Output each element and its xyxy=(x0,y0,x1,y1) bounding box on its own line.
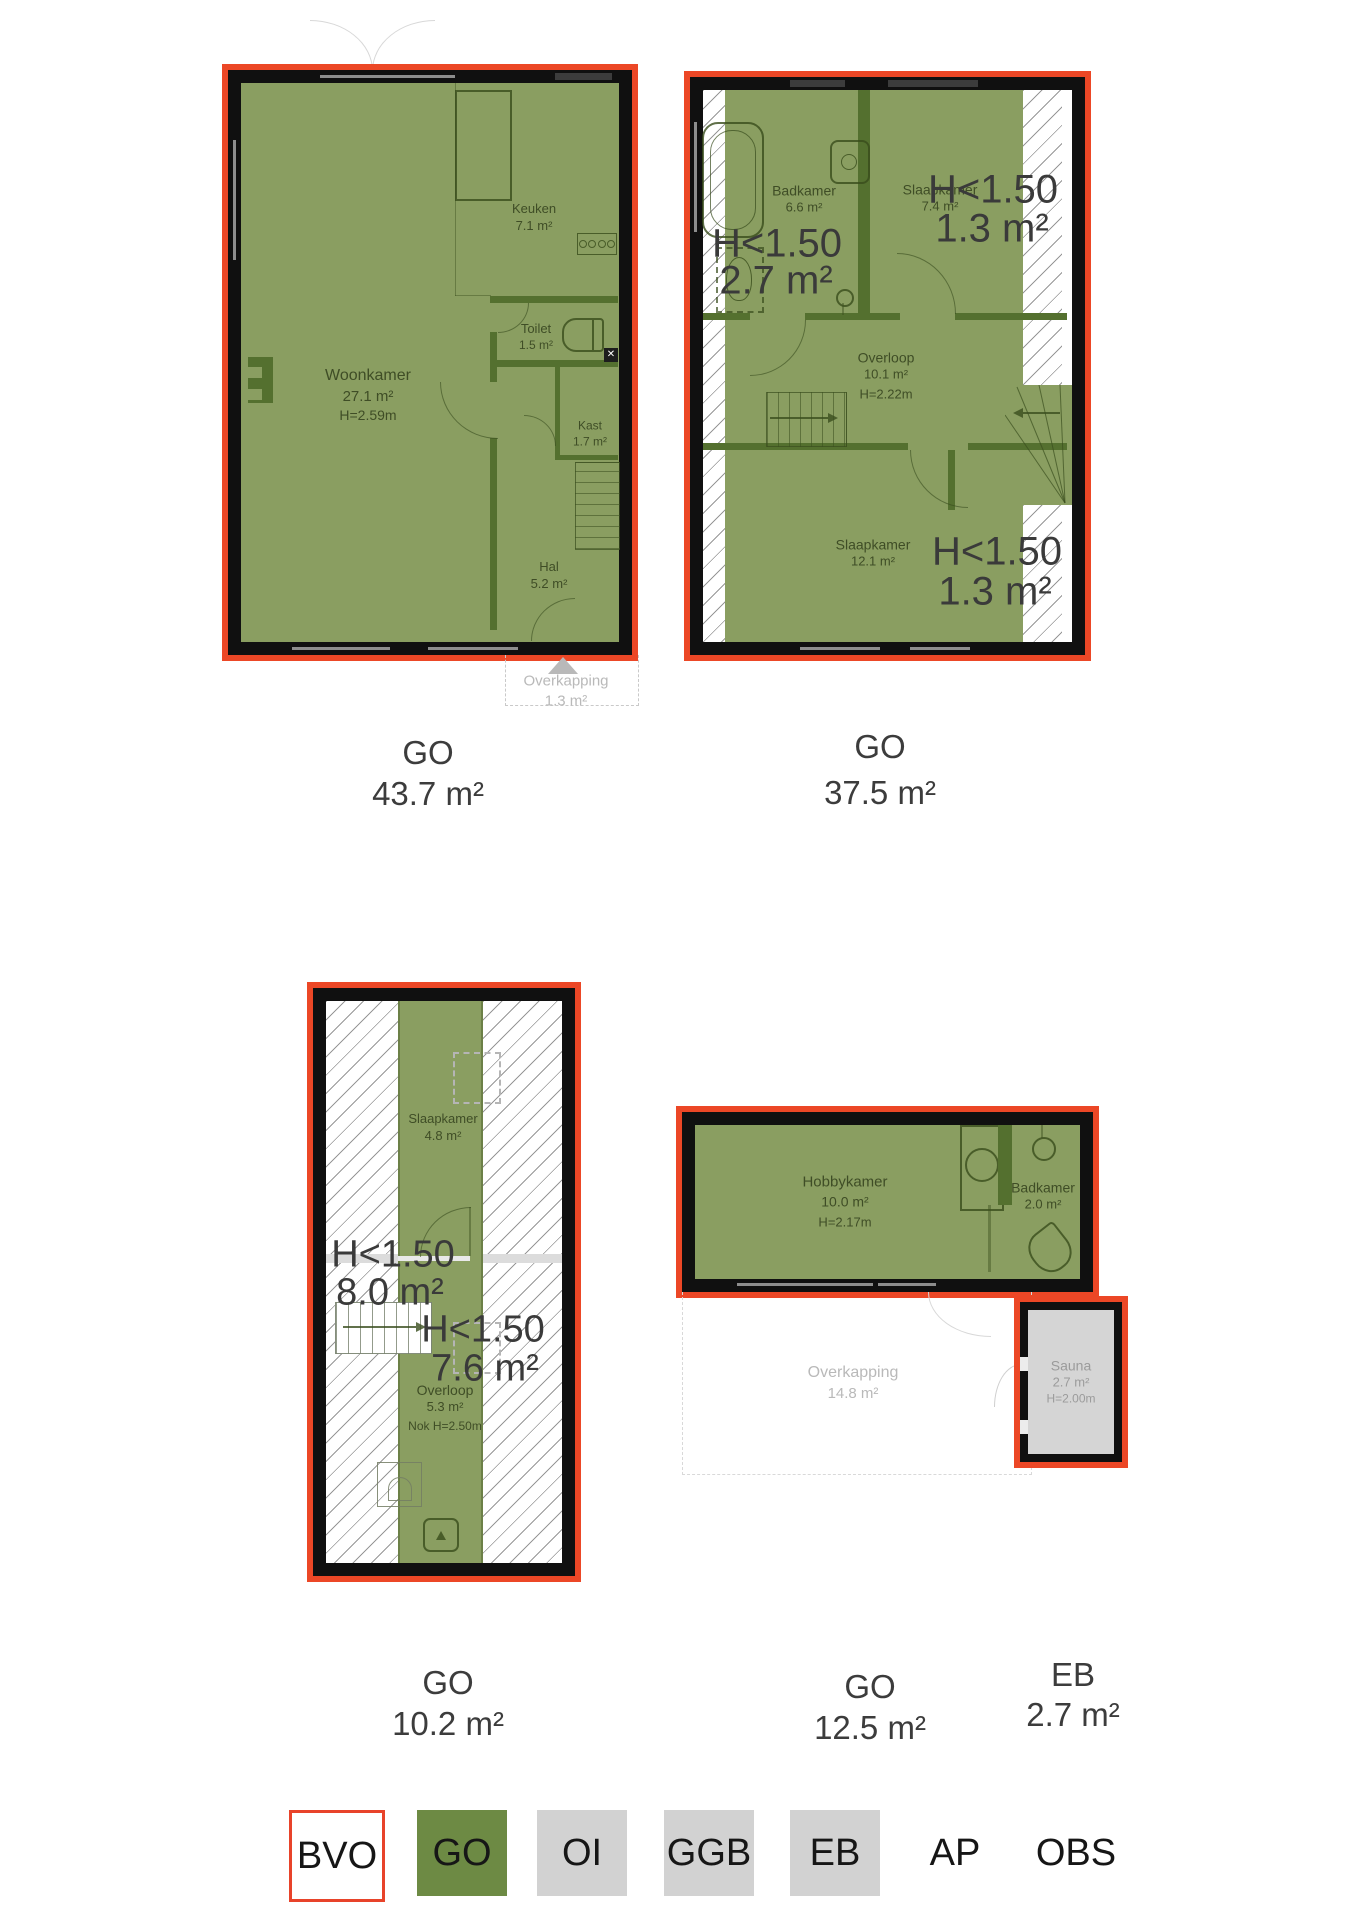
wall-kast-left xyxy=(555,367,560,460)
legend-item-ap: AP xyxy=(910,1810,1000,1896)
sauna-door-gap xyxy=(1020,1420,1028,1434)
wall-badkamer-right xyxy=(858,90,870,313)
room-label-hobbykamer: Hobbykamer 10.0 m² H=2.17m xyxy=(802,1173,887,1232)
knee-wall-band-right xyxy=(483,1254,562,1263)
room-label-slaapkamer3: Slaapkamer 4.8 m² xyxy=(408,1111,477,1145)
washbasin-icon xyxy=(965,1148,999,1182)
window-marker xyxy=(737,1283,873,1286)
eb-label-sauna: EB xyxy=(1051,1656,1095,1694)
plan4-annex: Hobbykamer 10.0 m² H=2.17m Badkamer 2.0 … xyxy=(682,1112,1093,1292)
room-label-overkapping-1: Overkapping 1.3 m² xyxy=(523,672,608,711)
room-label-kast: Kast 1.7 m² xyxy=(573,418,607,449)
go-area-plan3: 10.2 m² xyxy=(392,1705,504,1743)
go-area-plan4: 12.5 m² xyxy=(814,1709,926,1747)
floorplan-page: ✕ Keuken 7.1 m² Woonkamer 27.1 m² H=2.59… xyxy=(0,0,1358,1920)
door-leaf xyxy=(469,1207,471,1256)
legend-item-bvo: BVO xyxy=(289,1810,385,1902)
room-label-badkamer4: Badkamer 2.0 m² xyxy=(1011,1178,1075,1213)
kitchen-counter xyxy=(455,90,512,201)
window-marker xyxy=(292,647,390,650)
room-label-badkamer: Badkamer 6.6 m² xyxy=(772,181,836,216)
go-label-plan4: GO xyxy=(844,1668,895,1706)
window-marker xyxy=(878,1283,936,1286)
cabinet-icon xyxy=(377,1462,422,1507)
go-area-plan1: 43.7 m² xyxy=(372,775,484,813)
wall-top-b xyxy=(805,313,900,320)
go-label-plan3: GO xyxy=(422,1664,473,1702)
room-label-slaapkamer-bottom: Slaapkamer 12.1 m² xyxy=(836,535,911,570)
go-label-plan2: GO xyxy=(854,728,905,766)
hlabel-left-line1: H<1.50 xyxy=(331,1234,455,1277)
stairs-arrow xyxy=(770,417,828,419)
legend-item-eb: EB xyxy=(790,1810,880,1896)
entry-door-swing-left xyxy=(310,20,373,71)
shower-stem xyxy=(1041,1125,1043,1138)
sauna-box: Sauna 2.7 m² H=2.00m xyxy=(1020,1302,1122,1462)
go-label-plan1: GO xyxy=(402,734,453,772)
plan3-attic: Slaapkamer 4.8 m² Overloop 5.3 m² Nok H=… xyxy=(313,988,575,1576)
hlabel-right-line1: H<1.50 xyxy=(421,1309,545,1352)
divider-line xyxy=(988,1205,991,1272)
legend-item-obs: OBS xyxy=(1031,1810,1121,1896)
plan1-ground-floor: ✕ Keuken 7.1 m² Woonkamer 27.1 m² H=2.59… xyxy=(228,70,632,655)
window-marker xyxy=(888,80,978,87)
window-marker xyxy=(800,647,880,650)
window-marker xyxy=(233,140,236,260)
boiler-icon xyxy=(423,1518,459,1552)
room-label-keuken: Keuken 7.1 m² xyxy=(512,201,556,235)
stairs-icon xyxy=(575,462,620,550)
wall-top-c xyxy=(955,313,1067,320)
hlabel-badkamer-line2: 2.7 m² xyxy=(719,259,832,304)
shaft-icon: ✕ xyxy=(604,348,618,362)
stove-icon xyxy=(577,233,617,255)
toilet-icon xyxy=(562,318,604,352)
stairs-winder-icon xyxy=(1005,385,1067,505)
room-label-hal: Hal 5.2 m² xyxy=(531,559,568,593)
skylight-dashed xyxy=(453,1052,501,1104)
stairs-arrow-head xyxy=(828,413,838,423)
window-marker xyxy=(694,122,697,232)
plan2-first-floor: Badkamer 6.6 m² Slaapkamer 7.4 m² Overlo… xyxy=(690,77,1085,655)
hlabel-right-line2: 7.6 m² xyxy=(431,1348,539,1391)
pedestal-sink-icon xyxy=(836,289,854,307)
room-label-overloop: Overloop 10.1 m² H=2.22m xyxy=(858,349,915,404)
wall-toilet-bottom xyxy=(497,360,618,367)
wall-badkamer4 xyxy=(998,1125,1012,1205)
hlabel-slaapkamer-bottom-line1: H<1.50 xyxy=(932,530,1062,575)
legend-item-ggb: GGB xyxy=(664,1810,754,1896)
sauna-door-gap xyxy=(1020,1357,1028,1371)
hlabel-slaapkamer-top-line2: 1.3 m² xyxy=(935,207,1048,252)
room-label-sauna: Sauna 2.7 m² H=2.00m xyxy=(1046,1357,1095,1408)
sink-icon xyxy=(830,140,870,184)
window-marker xyxy=(428,647,518,650)
room-label-toilet: Toilet 1.5 m² xyxy=(519,321,553,353)
fireplace-recess-cut xyxy=(248,367,262,378)
fireplace-recess-cut xyxy=(248,389,262,400)
wall-kast-bottom xyxy=(555,455,618,460)
hlabel-slaapkamer-bottom-line2: 1.3 m² xyxy=(938,570,1051,615)
window-marker xyxy=(555,73,612,80)
shower-icon xyxy=(1032,1137,1056,1161)
window-marker xyxy=(790,80,845,87)
legend-item-go: GO xyxy=(417,1810,507,1896)
room-label-woonkamer: Woonkamer 27.1 m² H=2.59m xyxy=(325,366,411,424)
kitchen-boundary-line xyxy=(455,295,491,296)
wall-woonkamer-right-lower xyxy=(490,438,497,630)
wall-top-a xyxy=(703,313,750,320)
pedestal-stem xyxy=(842,303,844,315)
legend-item-oi: OI xyxy=(537,1810,627,1896)
window-marker xyxy=(910,647,970,650)
wall-toilet-top xyxy=(490,296,618,303)
room-label-overkapping-4: Overkapping 14.8 m² xyxy=(808,1363,899,1403)
entry-door-swing-right xyxy=(372,20,435,71)
eb-area-sauna: 2.7 m² xyxy=(1026,1696,1120,1734)
wall-woonkamer-right xyxy=(490,332,497,382)
window-marker xyxy=(320,75,455,78)
go-area-plan2: 37.5 m² xyxy=(824,774,936,812)
stairs-arrow xyxy=(343,1326,416,1328)
